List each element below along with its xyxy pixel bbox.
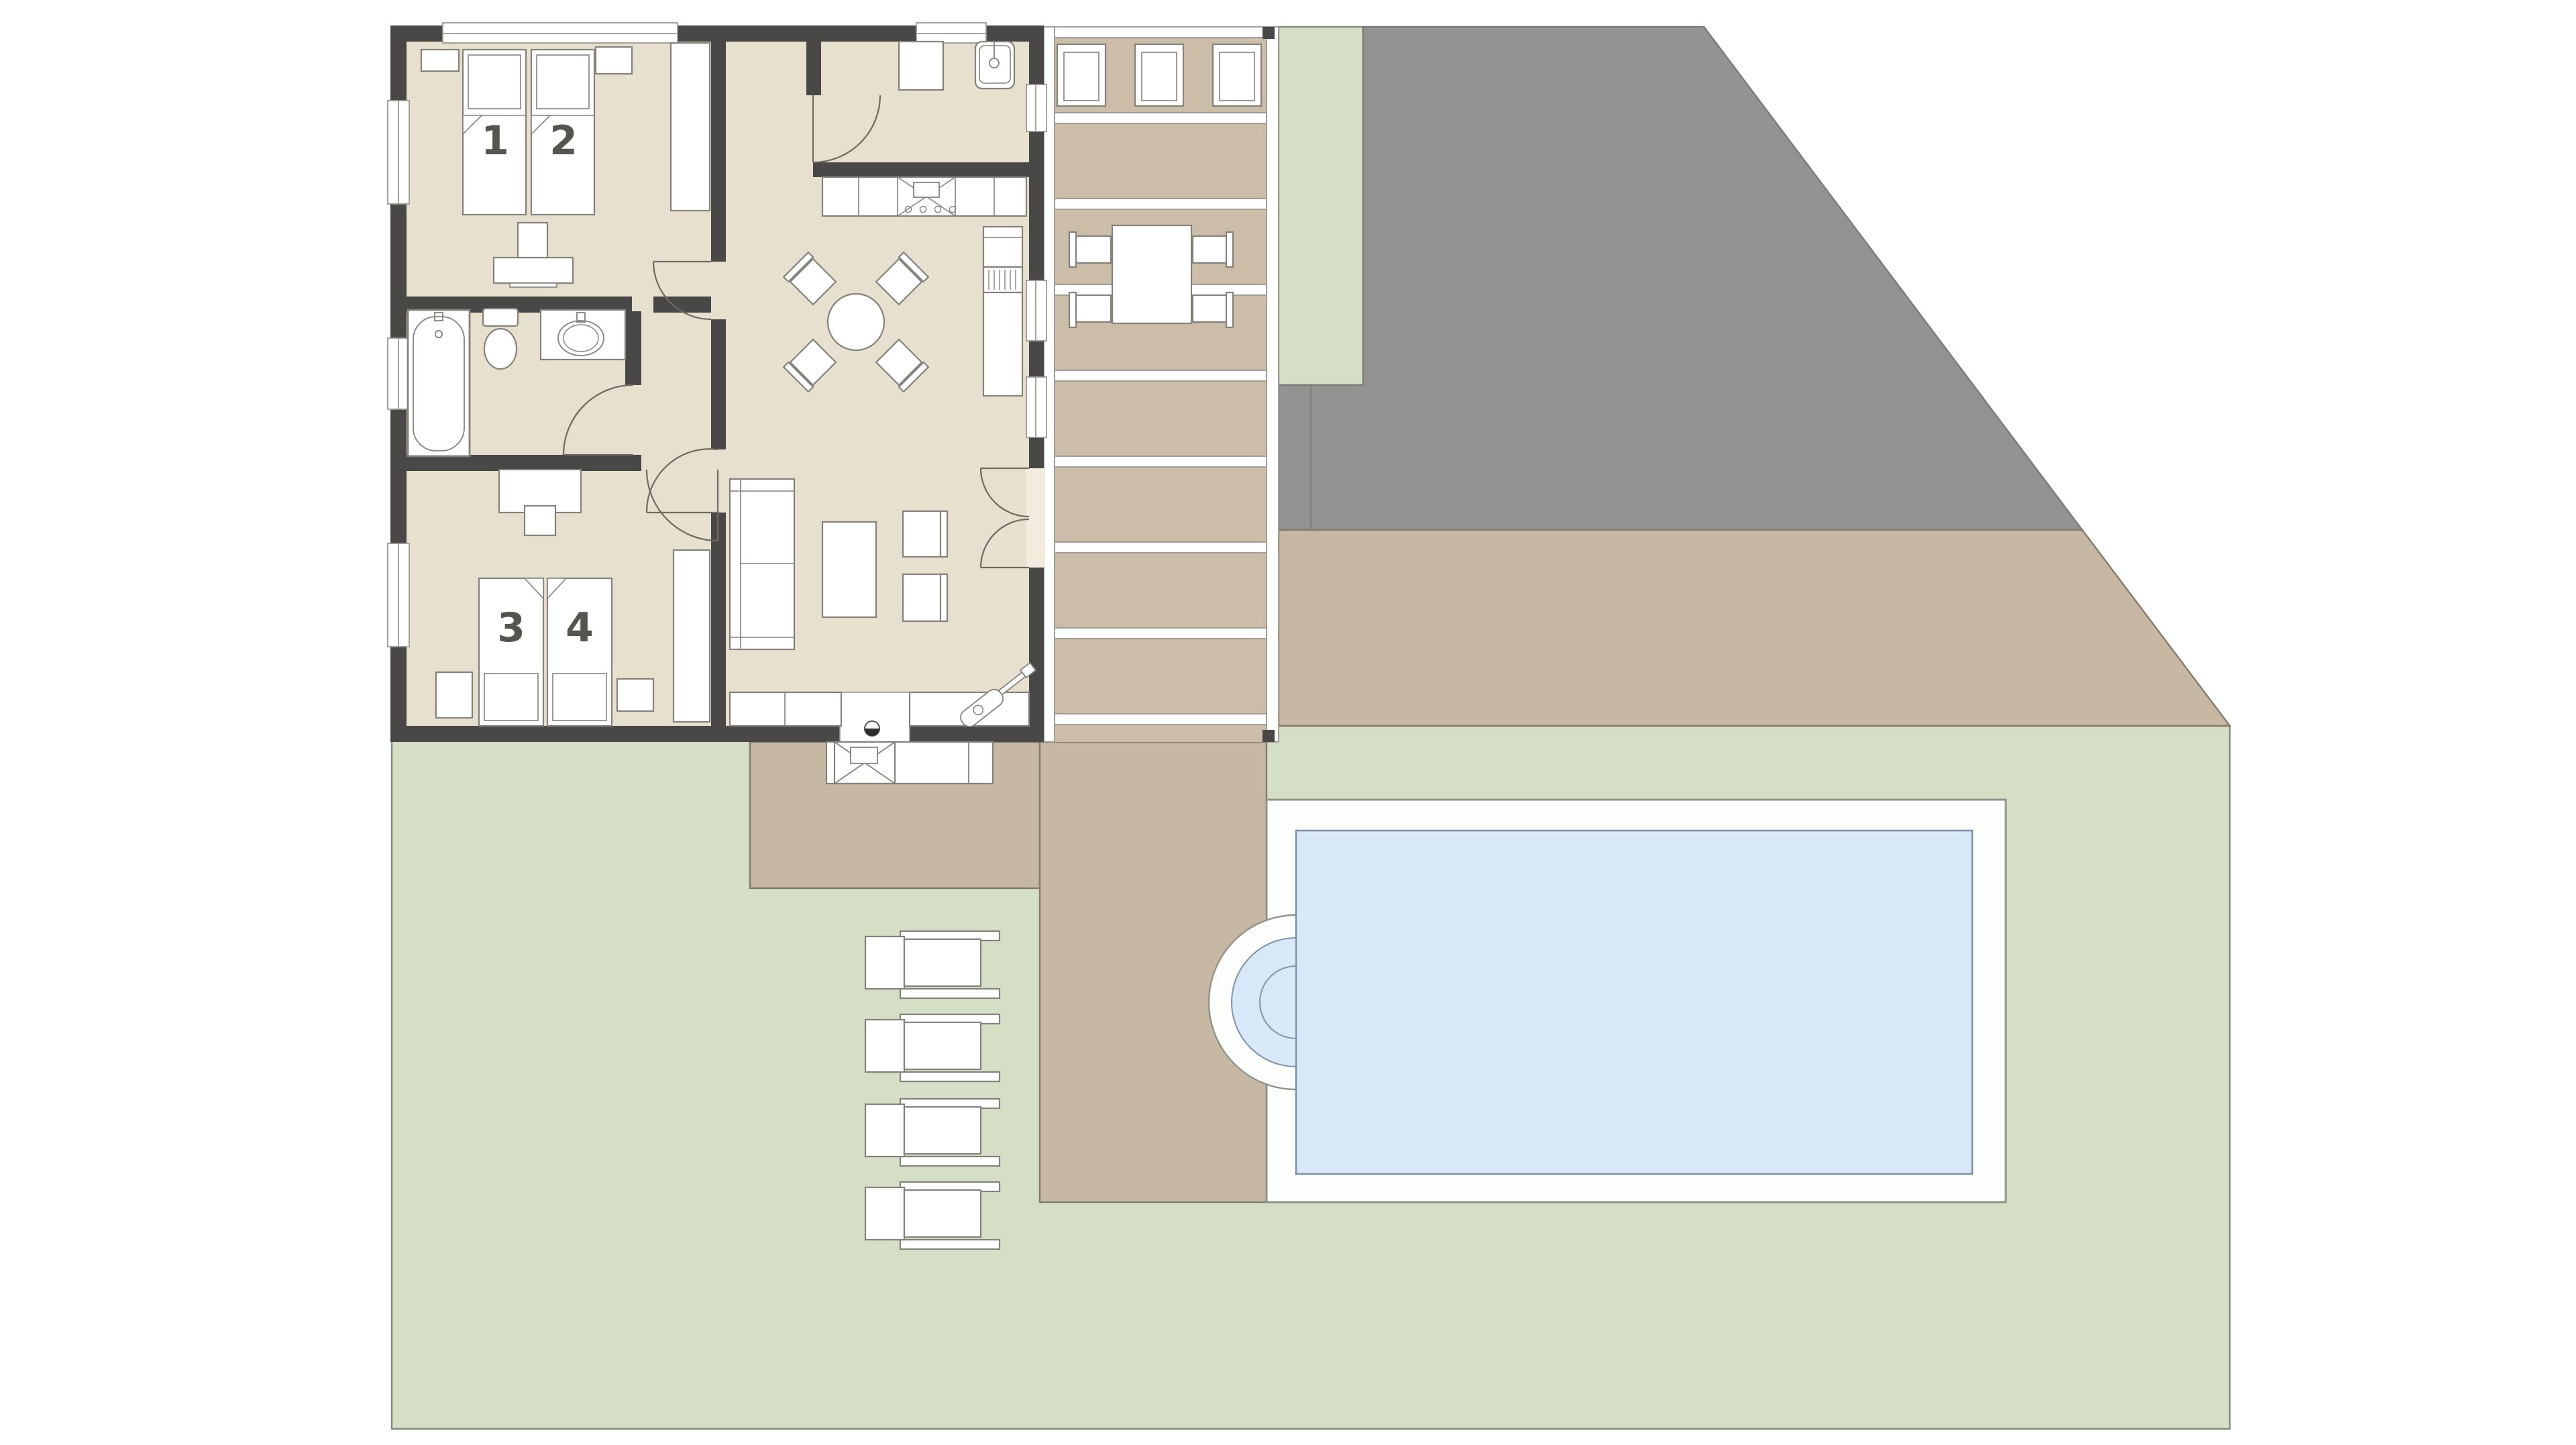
nightstand: [436, 672, 472, 718]
deck-post: [1263, 27, 1275, 39]
outdoor-chair-back: [1069, 232, 1076, 267]
wardrobe-bedroomB: [674, 550, 710, 722]
deck-slat: [1055, 542, 1267, 553]
bed-3: [479, 578, 543, 726]
deck-slat: [1055, 628, 1267, 639]
vanity: [541, 310, 625, 360]
deck-slat: [1055, 370, 1267, 381]
window-right-3: [1026, 377, 1046, 437]
window-right-2: [1026, 280, 1046, 341]
outdoor-chair: [1193, 295, 1229, 322]
lawn-strip-top: [1279, 27, 1363, 385]
counter-low: [983, 292, 1022, 396]
lounger-back: [865, 1020, 904, 1072]
sideboard-left: [730, 692, 841, 726]
deck-slat: [1055, 714, 1267, 725]
wall-bedroomA-bath-stub: [653, 297, 711, 313]
wall-bath-bottom: [390, 455, 641, 471]
chair-bedroomA: [518, 223, 547, 258]
deck-slat: [1055, 27, 1267, 38]
chair-bedroomB: [525, 506, 555, 535]
lounger-rail: [900, 1072, 1000, 1081]
deck-post: [1263, 730, 1275, 742]
coffee-table: [822, 522, 876, 617]
floor-plan: 1234: [0, 0, 2576, 1445]
lounger-seat: [904, 1022, 981, 1069]
lounger-rail: [900, 1157, 1000, 1166]
desk-bedroomA-edge: [510, 283, 557, 287]
lounger-seat: [904, 1190, 981, 1237]
lounger-seat: [904, 1107, 981, 1154]
outdoor-chair-back: [1226, 292, 1233, 327]
bed-2-number: 2: [549, 117, 578, 164]
deck-chair: [1057, 44, 1106, 106]
deck-slat: [1055, 113, 1267, 123]
dining-table: [828, 294, 884, 350]
armchair-back: [941, 574, 947, 621]
wall-bottom: [390, 726, 1044, 742]
nightstand: [596, 47, 632, 74]
floor-plan-canvas: 1234: [0, 0, 2576, 1445]
wall-hall-lower: [711, 513, 726, 726]
outdoor-table: [1112, 225, 1191, 323]
lounger-rail: [900, 1240, 1000, 1249]
wall-utility-bottom: [813, 162, 1029, 177]
deck-slat: [1055, 199, 1267, 209]
window-top-utility: [916, 23, 986, 43]
french-door-gap: [1026, 468, 1045, 568]
nightstand: [421, 50, 459, 71]
lounger-back: [865, 1104, 904, 1157]
bed-4: [547, 578, 612, 726]
outdoor-chair-back: [1226, 232, 1233, 267]
wall-hall-mid: [711, 319, 726, 449]
lounger-seat: [904, 939, 981, 986]
deck-chair: [1213, 44, 1261, 106]
bed-1-number: 1: [481, 117, 509, 164]
wardrobe-bedroomA: [671, 43, 710, 211]
window-right-1: [1026, 85, 1046, 131]
wall-utility-stub: [806, 40, 821, 95]
outdoor-chair: [1193, 236, 1229, 263]
bathtub: [408, 310, 470, 456]
toilet-tank: [483, 309, 518, 326]
deck-beam-right: [1267, 27, 1279, 742]
deck-chair: [1135, 44, 1183, 106]
washing-machine: [899, 42, 943, 90]
stove-knob: [914, 182, 939, 197]
window-top-bedroomA: [443, 23, 678, 43]
bed-3-number: 3: [497, 604, 525, 651]
fridge: [983, 227, 1022, 267]
wall-hall-upper: [711, 40, 726, 262]
wall-bath-right: [625, 311, 641, 385]
sofa: [730, 479, 794, 649]
pool-water: [1296, 831, 1972, 1174]
armchair-back: [941, 511, 947, 557]
lounger-rail: [900, 989, 1000, 998]
lounger-back: [865, 1187, 904, 1240]
driveway: [1279, 27, 2082, 530]
desk-bedroomA: [494, 258, 573, 283]
nightstand: [617, 679, 653, 711]
outdoor-chair: [1075, 236, 1111, 263]
deck-slat: [1055, 456, 1267, 467]
lounger-back: [865, 936, 904, 989]
upper-patio: [1279, 530, 2230, 726]
toilet-bowl: [484, 329, 517, 369]
outdoor-chair-back: [1069, 292, 1076, 327]
bed-4-number: 4: [566, 604, 594, 651]
outdoor-chair: [1075, 295, 1111, 322]
bbq-knob: [851, 747, 877, 763]
